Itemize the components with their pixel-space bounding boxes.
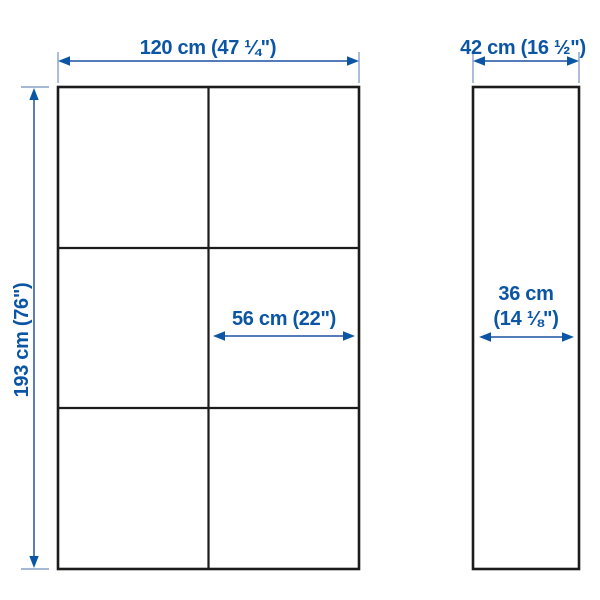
arrowhead-left-icon <box>479 332 491 341</box>
section-width-dimension: 56 cm (22") <box>213 308 355 341</box>
arrowhead-right-icon <box>343 331 355 340</box>
inner-depth-dimension-label-line1: 36 cm <box>498 283 553 305</box>
arrowhead-right-icon <box>347 56 359 65</box>
inner-depth-dimension-label-line2: (14 ⅛") <box>493 308 558 330</box>
width-dimension: 120 cm (47 ¼") <box>58 37 359 83</box>
dimension-diagram: 120 cm (47 ¼") 42 cm (16 ½") 193 cm (76"… <box>0 0 600 600</box>
width-dimension-label: 120 cm (47 ¼") <box>140 37 276 59</box>
arrowhead-up-icon <box>29 88 38 100</box>
arrowhead-left-icon <box>213 331 225 340</box>
arrowhead-down-icon <box>29 556 38 568</box>
depth-dimension-label: 42 cm (16 ½") <box>460 37 586 59</box>
height-dimension: 193 cm (76") <box>11 87 49 569</box>
arrowhead-left-icon <box>58 56 70 65</box>
depth-dimension: 42 cm (16 ½") <box>460 37 586 83</box>
height-dimension-label: 193 cm (76") <box>11 283 33 398</box>
inner-depth-dimension: 36 cm (14 ⅛") <box>479 283 574 342</box>
dimension-diagram-canvas: 120 cm (47 ¼") 42 cm (16 ½") 193 cm (76"… <box>0 0 600 600</box>
section-width-dimension-label: 56 cm (22") <box>232 308 336 330</box>
arrowhead-right-icon <box>562 332 574 341</box>
